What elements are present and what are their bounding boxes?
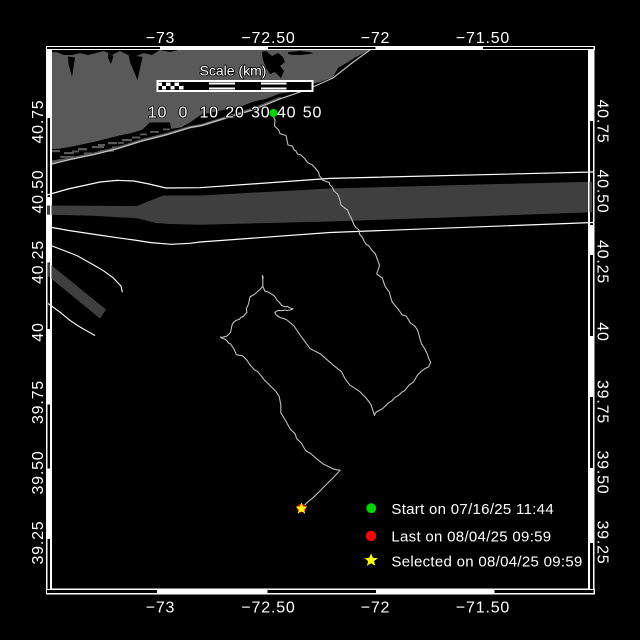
svg-text:Last on 08/04/25 09:59: Last on 08/04/25 09:59 [391,528,551,545]
svg-text:40.50: 40.50 [30,169,47,213]
svg-text:Start on 07/16/25 11:44: Start on 07/16/25 11:44 [391,501,554,518]
svg-text:39.50: 39.50 [594,450,611,494]
svg-text:0: 0 [178,105,188,122]
svg-text:40.75: 40.75 [30,99,47,143]
svg-text:30: 30 [251,105,270,122]
svg-text:40: 40 [594,322,611,341]
svg-text:−73: −73 [146,600,176,617]
svg-text:−72.50: −72.50 [241,600,295,617]
svg-text:−72.50: −72.50 [241,30,295,47]
svg-text:10: 10 [148,105,167,122]
svg-text:50: 50 [303,105,322,122]
svg-text:40: 40 [277,105,296,122]
svg-text:40.75: 40.75 [594,99,611,143]
svg-text:40.25: 40.25 [30,240,47,284]
svg-text:Scale (km): Scale (km) [200,62,267,78]
svg-text:10: 10 [199,105,218,122]
svg-text:39.25: 39.25 [30,520,47,564]
svg-text:39.75: 39.75 [594,380,611,424]
svg-text:20: 20 [225,105,244,122]
svg-text:Selected on 08/04/25 09:59: Selected on 08/04/25 09:59 [391,554,582,571]
svg-text:39.25: 39.25 [594,520,611,564]
svg-text:−72: −72 [361,600,391,617]
svg-text:40.25: 40.25 [594,240,611,284]
svg-text:40.50: 40.50 [594,169,611,213]
svg-text:39.50: 39.50 [30,450,47,494]
svg-text:−73: −73 [146,30,176,47]
svg-text:−71.50: −71.50 [456,600,510,617]
svg-text:−71.50: −71.50 [456,30,510,47]
svg-text:−72: −72 [361,30,391,47]
svg-text:40: 40 [30,322,47,341]
svg-text:39.75: 39.75 [30,380,47,424]
